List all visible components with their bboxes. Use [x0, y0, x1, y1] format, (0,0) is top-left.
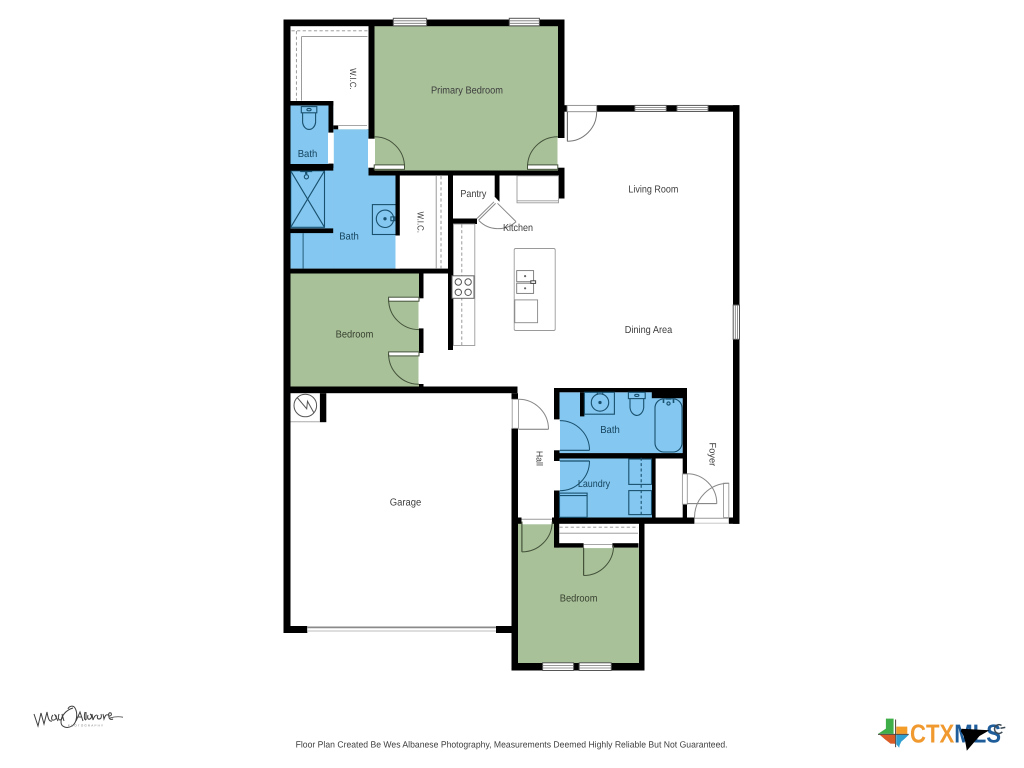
- svg-text:Bath: Bath: [600, 425, 620, 436]
- svg-text:Bedroom: Bedroom: [336, 329, 374, 340]
- svg-text:Bath: Bath: [339, 232, 359, 243]
- svg-text:PHOTOGRAPHY: PHOTOGRAPHY: [68, 724, 104, 728]
- svg-text:Pantry: Pantry: [460, 189, 487, 200]
- svg-text:Dining Area: Dining Area: [625, 325, 673, 336]
- svg-text:Garage: Garage: [390, 498, 422, 509]
- svg-text:W.I.C.: W.I.C.: [348, 68, 358, 89]
- svg-text:Primary Bedroom: Primary Bedroom: [431, 86, 503, 97]
- svg-text:Bedroom: Bedroom: [560, 594, 598, 605]
- svg-text:Hall: Hall: [535, 451, 545, 466]
- svg-text:Living Room: Living Room: [628, 184, 678, 195]
- svg-text:Laundry: Laundry: [578, 479, 611, 490]
- svg-text:Bath: Bath: [298, 149, 318, 160]
- svg-text:Foyer: Foyer: [706, 443, 717, 467]
- svg-text:Kitchen: Kitchen: [503, 223, 533, 234]
- svg-text:W.I.C.: W.I.C.: [416, 212, 426, 233]
- svg-text:CTXMLS: CTXMLS: [910, 719, 1001, 749]
- svg-text:Floor Plan Created Be Wes Alba: Floor Plan Created Be Wes Albanese Photo…: [296, 740, 728, 750]
